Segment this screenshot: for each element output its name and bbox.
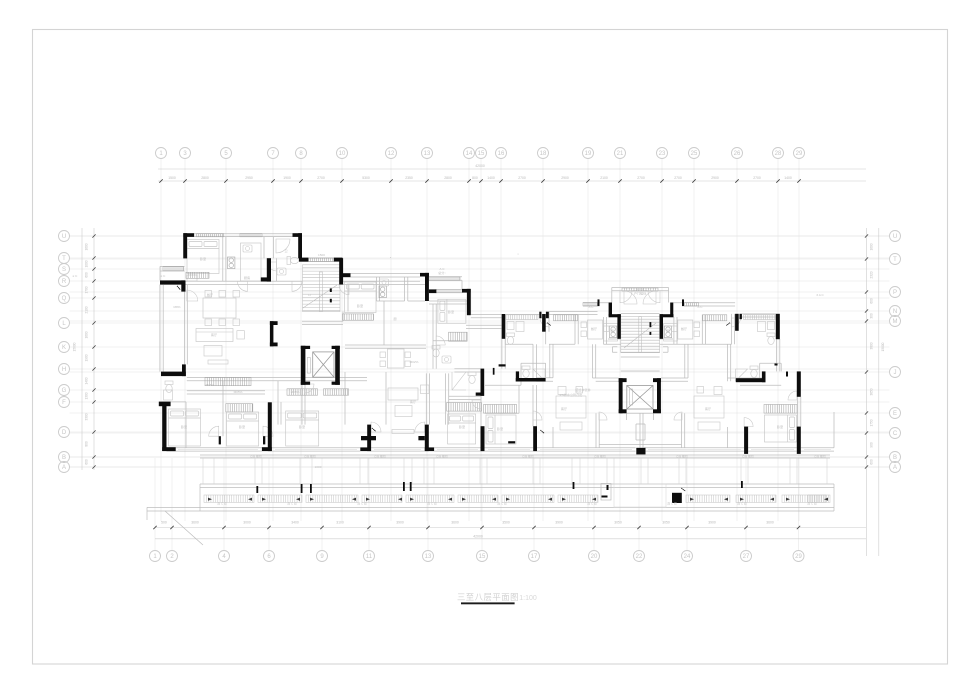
svg-text:3100: 3100 (336, 521, 344, 525)
svg-text:1000: 1000 (315, 465, 322, 469)
svg-text:LT: LT (308, 293, 311, 297)
svg-text:卧室: 卧室 (239, 424, 245, 429)
svg-text:双 C 双: 双 C 双 (357, 502, 367, 506)
svg-text:3050: 3050 (614, 521, 622, 525)
svg-text:2320: 2320 (870, 271, 874, 278)
svg-text:总分↑: 总分↑ (438, 270, 446, 275)
svg-text:2700: 2700 (317, 176, 325, 180)
svg-text:15: 15 (478, 151, 485, 157)
svg-text:卧室: 卧室 (497, 426, 503, 431)
svg-text:2350: 2350 (405, 176, 413, 180)
svg-text:双 C 双: 双 C 双 (497, 502, 507, 506)
svg-text:3300: 3300 (85, 413, 89, 420)
svg-text:2700: 2700 (674, 176, 682, 180)
svg-text:客厅: 客厅 (705, 406, 711, 411)
svg-text:A C: A C (589, 305, 595, 309)
svg-text:A: A (62, 465, 66, 471)
svg-text:15: 15 (479, 554, 486, 560)
svg-text:T: T (62, 256, 66, 262)
svg-text:2900: 2900 (711, 176, 719, 180)
svg-text:Q: Q (62, 296, 67, 302)
svg-text:M: M (893, 319, 898, 325)
svg-text:厨房: 厨房 (244, 275, 250, 280)
svg-text:18: 18 (540, 151, 547, 157)
svg-text:客厅: 客厅 (561, 406, 567, 411)
svg-text:S: S (62, 267, 66, 273)
svg-text:1500: 1500 (637, 287, 644, 291)
svg-text:餐厅: 餐厅 (591, 326, 597, 331)
svg-text:21: 21 (617, 151, 624, 157)
svg-text:双 C 双: 双 C 双 (667, 502, 677, 506)
svg-text:P: P (893, 290, 897, 296)
svg-text:16: 16 (498, 151, 505, 157)
svg-text:800: 800 (85, 441, 89, 447)
svg-text:17: 17 (531, 554, 538, 560)
svg-text:≥ C: ≥ C (73, 274, 79, 278)
svg-text:M05%: M05% (206, 383, 215, 387)
svg-text:3050: 3050 (662, 521, 670, 525)
svg-text:3600: 3600 (766, 521, 774, 525)
svg-text:1000: 1000 (85, 260, 89, 267)
svg-text:3900: 3900 (396, 521, 404, 525)
svg-text:1400: 1400 (784, 176, 792, 180)
svg-text:双 C 双: 双 C 双 (427, 502, 437, 506)
svg-text:1600: 1600 (85, 331, 89, 338)
svg-text:25: 25 (691, 151, 698, 157)
svg-text:F: F (62, 400, 66, 406)
svg-text:T: T (893, 257, 897, 263)
svg-text:42000: 42000 (473, 534, 483, 538)
svg-text:卧室: 卧室 (777, 424, 783, 429)
svg-text:B: B (893, 455, 897, 461)
svg-text:13: 13 (424, 151, 431, 157)
svg-text:5300: 5300 (362, 176, 370, 180)
svg-text:3400: 3400 (291, 521, 299, 525)
svg-text:E: E (893, 411, 897, 417)
svg-text:600: 600 (870, 459, 874, 465)
svg-text:3800: 3800 (870, 342, 874, 349)
svg-text:1750: 1750 (870, 419, 874, 426)
svg-text:3650: 3650 (870, 388, 874, 395)
svg-text:3600: 3600 (451, 521, 459, 525)
svg-text:C/B 推拉: C/B 推拉 (250, 453, 262, 458)
svg-text:双 C 双: 双 C 双 (287, 502, 297, 506)
svg-text:卧室: 卧室 (299, 424, 305, 429)
svg-text:1500: 1500 (168, 176, 176, 180)
svg-text:2950: 2950 (245, 176, 253, 180)
svg-text:500: 500 (161, 521, 167, 525)
svg-text:双 C 双: 双 C 双 (587, 502, 597, 506)
svg-text:R: R (62, 279, 67, 285)
svg-text:G: G (62, 388, 67, 394)
svg-text:1300: 1300 (85, 392, 89, 399)
svg-text:900: 900 (870, 442, 874, 448)
svg-text:卧室: 卧室 (181, 424, 187, 429)
svg-text:卧室: 卧室 (357, 303, 363, 308)
svg-text:J: J (894, 370, 897, 376)
svg-text:29: 29 (795, 554, 802, 560)
svg-text:C/B 推拉: C/B 推拉 (374, 453, 386, 458)
svg-text:1900: 1900 (283, 176, 291, 180)
svg-text:2700: 2700 (518, 176, 526, 180)
svg-text:2700: 2700 (637, 176, 645, 180)
svg-text:29: 29 (796, 151, 803, 157)
svg-text:C/B 推拉: C/B 推拉 (676, 453, 688, 458)
svg-text:13: 13 (425, 554, 432, 560)
svg-text:双 C 双: 双 C 双 (807, 502, 817, 506)
svg-text:2700: 2700 (753, 176, 761, 180)
svg-text:三至八层平面图: 三至八层平面图 (457, 592, 519, 602)
svg-text:C/B 推拉: C/B 推拉 (522, 453, 534, 458)
svg-text:卧室: 卧室 (200, 256, 206, 261)
svg-text:N: N (893, 309, 897, 315)
svg-text:42000: 42000 (475, 164, 485, 168)
svg-text:B: B (62, 455, 66, 461)
svg-text:3900: 3900 (708, 521, 716, 525)
svg-text:15000: 15000 (881, 342, 885, 351)
svg-text:餐厅: 餐厅 (681, 326, 687, 331)
svg-text:客厅: 客厅 (410, 399, 416, 404)
svg-text:3000: 3000 (243, 521, 251, 525)
svg-text:300: 300 (870, 313, 874, 319)
svg-text:A C: A C (698, 305, 704, 309)
svg-text:1900: 1900 (85, 354, 89, 361)
svg-text:1600: 1600 (870, 243, 874, 250)
svg-text:1:100: 1:100 (519, 595, 537, 602)
svg-text:客厅: 客厅 (211, 332, 217, 337)
svg-text:C/B 推拉: C/B 推拉 (742, 453, 754, 458)
svg-text:双 C 双: 双 C 双 (217, 502, 227, 506)
svg-text:C/B 推拉: C/B 推拉 (814, 453, 826, 458)
svg-text:20: 20 (591, 554, 598, 560)
svg-text:22: 22 (636, 554, 643, 560)
svg-text:H: H (62, 367, 66, 373)
svg-text:≥ C: ≥ C (161, 274, 167, 278)
svg-text:1400: 1400 (487, 176, 495, 180)
svg-text:C/B 推拉: C/B 推拉 (594, 453, 606, 458)
svg-text:2100: 2100 (600, 176, 608, 180)
svg-text:15000: 15000 (73, 342, 77, 351)
svg-text:厨: 厨 (393, 316, 396, 321)
svg-text:2100: 2100 (85, 306, 89, 313)
svg-text:2900: 2900 (561, 176, 569, 180)
svg-text:C/B 推拉: C/B 推拉 (436, 453, 448, 458)
svg-text:A: A (893, 465, 897, 471)
svg-text:600: 600 (85, 459, 89, 465)
svg-text:D: D (62, 430, 67, 436)
svg-text:M05%: M05% (234, 390, 243, 394)
svg-text:双 C 双: 双 C 双 (737, 502, 747, 506)
svg-text:28: 28 (775, 151, 782, 157)
svg-text:C/B 推拉: C/B 推拉 (304, 453, 316, 458)
svg-text:卧室: 卧室 (459, 424, 465, 429)
svg-text:PS排水立管凸出: PS排水立管凸出 (560, 392, 583, 397)
svg-text:结给水管井: 结给水管井 (575, 387, 590, 392)
svg-text:2800: 2800 (201, 176, 209, 180)
svg-text:11: 11 (366, 554, 373, 560)
svg-text:12: 12 (388, 151, 395, 157)
svg-text:600: 600 (85, 272, 89, 278)
svg-text:卫: 卫 (284, 249, 287, 253)
svg-text:23: 23 (659, 151, 666, 157)
svg-text:1400: 1400 (85, 377, 89, 384)
svg-text:10: 10 (339, 151, 346, 157)
svg-text:26: 26 (734, 151, 741, 157)
svg-text:2800: 2800 (444, 176, 452, 180)
svg-text:厨: 厨 (666, 328, 669, 333)
svg-text:27: 27 (743, 554, 750, 560)
svg-text:3 A C: 3 A C (816, 293, 824, 297)
svg-text:1600: 1600 (85, 243, 89, 250)
svg-text:户门槛处: 户门槛处 (634, 291, 646, 296)
svg-text:600: 600 (870, 298, 874, 304)
svg-text:厨: 厨 (610, 328, 613, 333)
svg-text:1500: 1500 (318, 253, 325, 257)
svg-text:14: 14 (466, 151, 473, 157)
svg-text:M8%: M8% (173, 305, 180, 309)
svg-text:C: C (893, 431, 898, 437)
svg-text:800: 800 (472, 176, 478, 180)
svg-text:3600: 3600 (191, 521, 199, 525)
svg-text:餐厅: 餐厅 (207, 292, 213, 297)
svg-text:3900: 3900 (555, 521, 563, 525)
svg-text:1700: 1700 (85, 286, 89, 293)
svg-text:M02%: M02% (410, 360, 419, 364)
svg-text:19: 19 (585, 151, 592, 157)
svg-text:K: K (62, 345, 66, 351)
svg-text:3500: 3500 (502, 521, 510, 525)
svg-text:U: U (893, 234, 897, 240)
svg-text:卧室: 卧室 (448, 309, 454, 314)
svg-text:U: U (62, 234, 66, 240)
svg-text:M05%: M05% (291, 390, 300, 394)
svg-text:24: 24 (684, 554, 691, 560)
